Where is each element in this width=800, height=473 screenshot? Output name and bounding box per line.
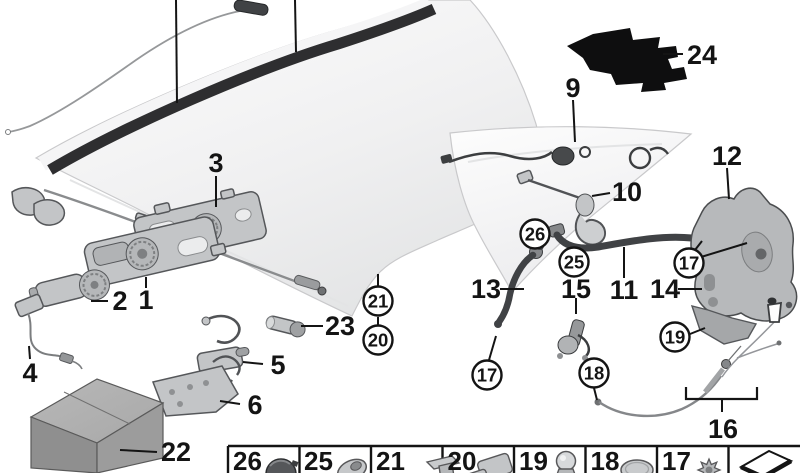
leader-line xyxy=(176,0,177,103)
legend-cell-number: 25 xyxy=(304,446,333,473)
hook-lever xyxy=(34,200,64,225)
legend-cell-number: 21 xyxy=(376,446,405,473)
wire-ball-end xyxy=(777,341,782,346)
callout-9[interactable]: 9 xyxy=(565,73,580,103)
clevis-cap xyxy=(768,298,777,305)
callout-2[interactable]: 2 xyxy=(112,286,127,316)
callout-23[interactable]: 23 xyxy=(325,311,355,341)
callout-12[interactable]: 12 xyxy=(712,141,742,171)
callout-26-label: 26 xyxy=(525,224,546,245)
circled-callout-21[interactable]: 21 xyxy=(364,287,393,316)
circled-callout-25[interactable]: 25 xyxy=(560,248,589,277)
callout-14[interactable]: 14 xyxy=(650,274,680,304)
bracket-hole xyxy=(203,380,209,386)
latch-cam-bolt xyxy=(756,249,767,260)
callout-5[interactable]: 5 xyxy=(270,350,285,380)
actuator-foot xyxy=(557,353,563,359)
latch-slot xyxy=(704,274,715,291)
circled-callout-26[interactable]: 26 xyxy=(521,220,550,249)
leader-line xyxy=(295,0,296,52)
callout-16[interactable]: 16 xyxy=(708,414,738,444)
circled-callout-19[interactable]: 19 xyxy=(661,323,690,352)
callout-18-label: 18 xyxy=(584,363,605,384)
callout-15[interactable]: 15 xyxy=(561,274,591,304)
callout-24[interactable]: 24 xyxy=(687,40,717,70)
callout-22[interactable]: 22 xyxy=(161,437,191,467)
bracket-hole xyxy=(169,389,175,395)
ball-pin-icon xyxy=(555,452,577,473)
callout-1[interactable]: 1 xyxy=(138,285,153,315)
bracket-hole xyxy=(187,384,193,390)
legend-cell-number: 18 xyxy=(591,446,620,473)
callout-11[interactable]: 11 xyxy=(610,275,639,305)
circled-callout-17-lower[interactable]: 17 xyxy=(473,361,502,390)
callout-25-label: 25 xyxy=(564,252,585,273)
circled-callout-20[interactable]: 20 xyxy=(364,326,393,355)
clevis-pin xyxy=(786,302,792,308)
legend-cell-number: 26 xyxy=(233,446,262,473)
callout-4[interactable]: 4 xyxy=(22,358,37,388)
cable-end xyxy=(6,130,11,135)
callout-21-label: 21 xyxy=(368,291,389,312)
clevis-fork xyxy=(768,303,781,322)
callout-3[interactable]: 3 xyxy=(208,148,223,178)
callout-19-label: 19 xyxy=(665,327,686,348)
callout-17-label: 17 xyxy=(477,365,498,386)
callout-17-label: 17 xyxy=(679,253,700,274)
parts-diagram: 3 1 2 4 5 6 22 23 9 10 24 12 13 15 11 14… xyxy=(0,0,800,473)
lever-body xyxy=(576,194,594,216)
circled-callout-18[interactable]: 18 xyxy=(580,359,609,388)
bracket-hole xyxy=(177,401,183,407)
callout-10[interactable]: 10 xyxy=(612,177,642,207)
hose-end xyxy=(494,320,502,328)
latch-hole xyxy=(708,297,718,307)
callout-6[interactable]: 6 xyxy=(247,390,262,420)
legend-cell-number: 17 xyxy=(662,446,691,473)
legend-cell-number: 19 xyxy=(519,446,548,473)
harness-grommet xyxy=(552,147,574,165)
callout-20-label: 20 xyxy=(368,330,389,351)
hook-pivot xyxy=(202,317,210,325)
rod-pin xyxy=(318,287,326,295)
drive-tab xyxy=(210,243,226,256)
callout-13[interactable]: 13 xyxy=(471,274,501,304)
legend-cell-number: 20 xyxy=(448,446,477,473)
circled-callout-17-upper[interactable]: 17 xyxy=(675,249,704,278)
actuator-body xyxy=(558,336,578,354)
